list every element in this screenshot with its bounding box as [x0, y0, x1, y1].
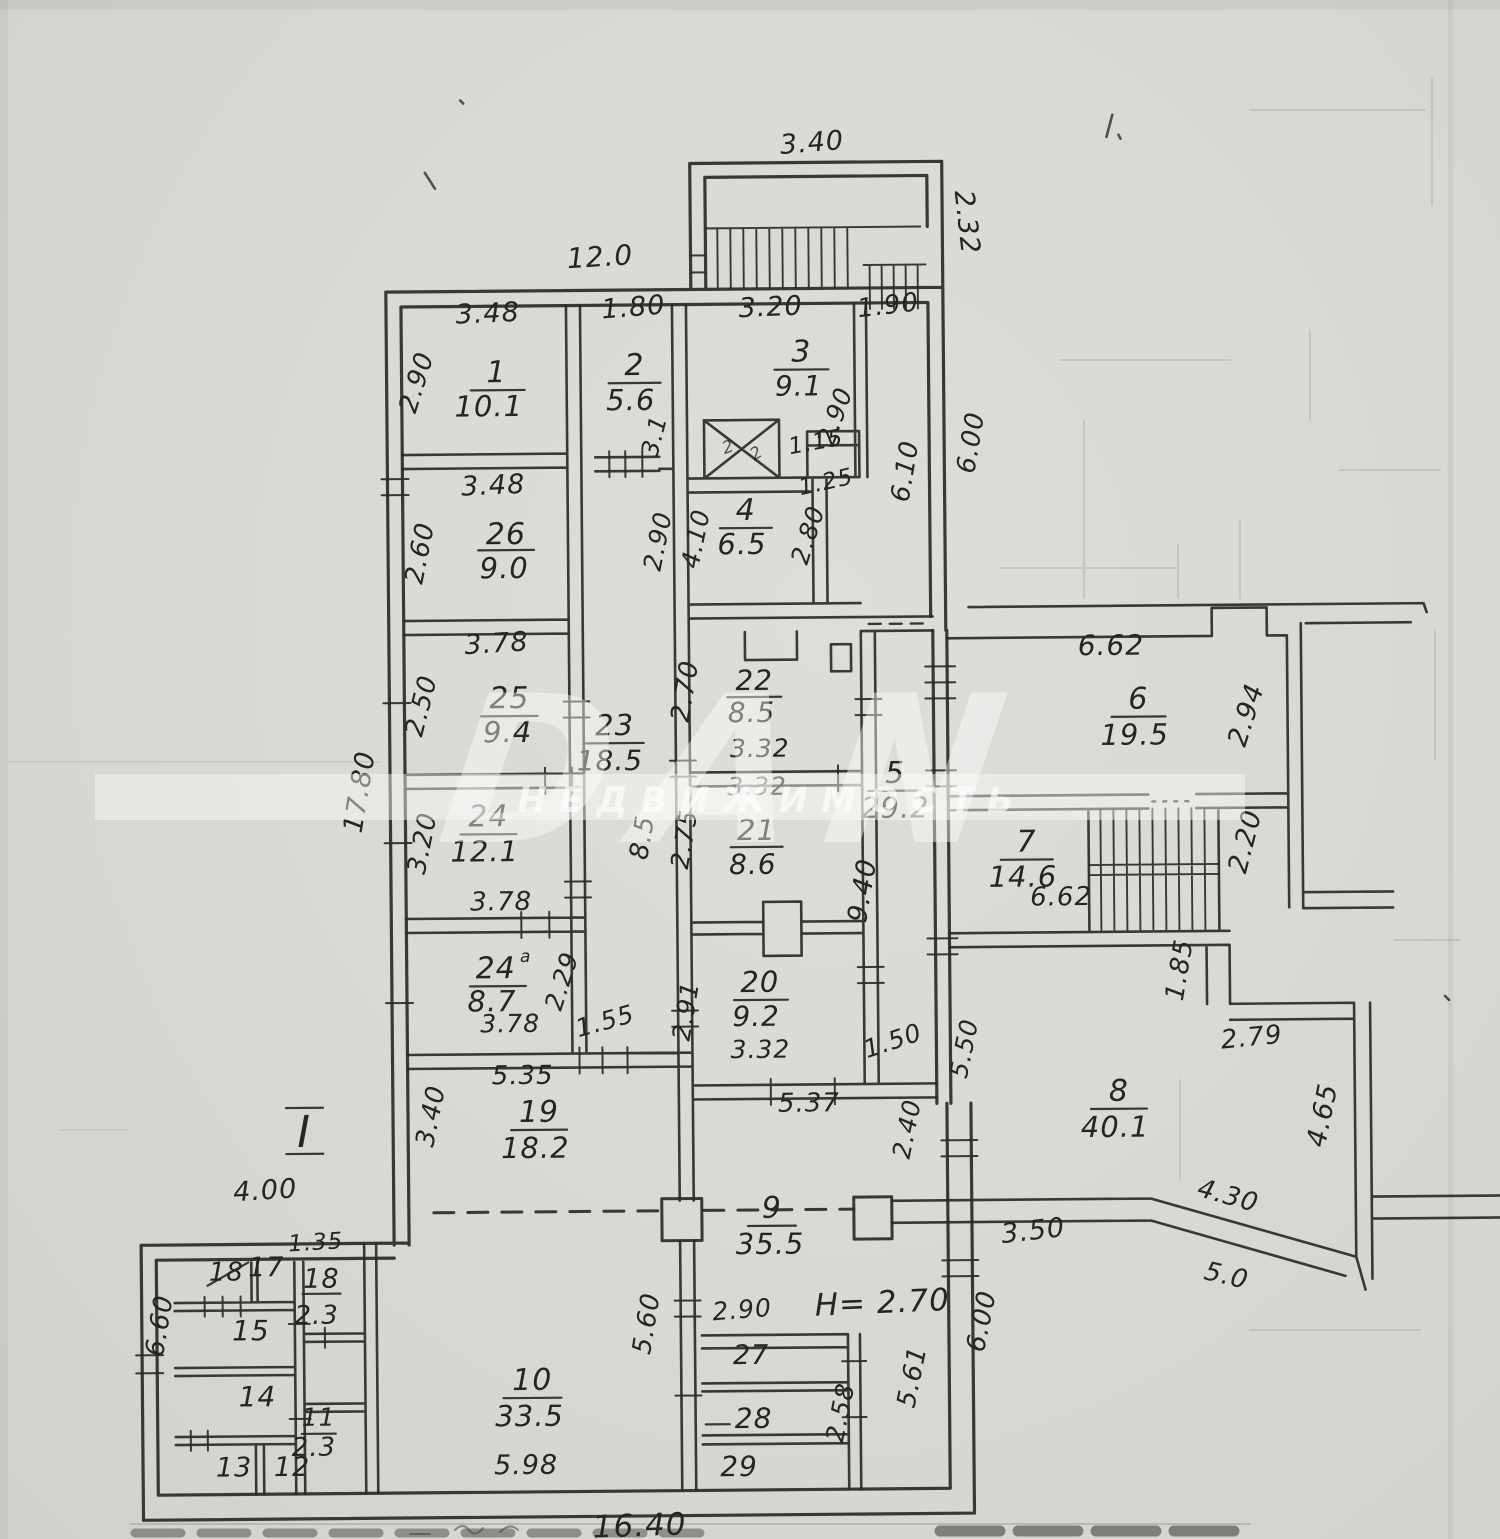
room-number: 6 [1128, 682, 1148, 717]
lift-scribble: 2 [747, 442, 767, 465]
room-number: 1 [486, 355, 506, 390]
dim-label: 3.78 [470, 887, 532, 918]
dim-label: 5.0 [1201, 1256, 1251, 1296]
dim-label: 4.10 [676, 507, 716, 571]
dim-label: 2.32 [948, 189, 986, 256]
dim-label: 3.48 [461, 469, 526, 503]
room-number: 4 [736, 493, 756, 528]
dim-label: 3.40 [410, 1083, 452, 1150]
dim-label: 2.80 [785, 502, 831, 568]
room-number: 18 [209, 1257, 244, 1287]
room-number: 3 [791, 334, 811, 369]
room-number: 10 [512, 1363, 552, 1398]
room-number-suffix: a [520, 947, 532, 967]
lift-scribble: 2 [719, 436, 737, 459]
dim-label: 6.00 [951, 410, 991, 476]
watermark: DAN НЕДВИЖИМОСТЬ [95, 652, 1245, 891]
dim-label: 2.90 [711, 1293, 773, 1327]
room-area: 33.5 [495, 1399, 564, 1434]
dim-label: 1.85 [1160, 937, 1200, 1003]
room-area: 6.5 [717, 527, 766, 561]
dim-label: 1.50 [860, 1017, 926, 1063]
room-area: 8.7 [467, 984, 516, 1018]
dashed-opening-line [434, 1209, 854, 1213]
dim-label: 4.65 [1301, 1081, 1344, 1150]
dim-label: 2.29 [539, 948, 585, 1014]
room-area: 40.1 [1081, 1110, 1150, 1145]
dim-label: 5.61 [892, 1344, 934, 1411]
dim-label: 3.48 [455, 297, 520, 331]
room-number: 18 [303, 1264, 340, 1295]
dim-label: 6.62 [1078, 629, 1145, 663]
dim-label: 2.94 [1222, 680, 1271, 750]
dim-label: 2.50 [399, 672, 444, 739]
column-junction-box [854, 1197, 892, 1239]
dim-label: 1.80 [600, 290, 666, 326]
column-junction-box [662, 1198, 702, 1240]
dashed-wall-segment [869, 623, 929, 624]
watermark-brand: DAN [428, 652, 1046, 891]
dim-label: 3.40 [779, 125, 845, 161]
dim-label: 3.32 [730, 1035, 790, 1065]
dim-label: 6.00 [961, 1288, 1003, 1355]
dim-label: 2.90 [638, 509, 678, 573]
dim-label: 1.35 [287, 1228, 344, 1257]
dim-label: 6.60 [140, 1293, 180, 1359]
dim-label: 6.10 [886, 438, 926, 504]
room-number: 20 [740, 965, 779, 999]
room-number: 17 [248, 1252, 285, 1283]
room-number: 8 [1109, 1074, 1129, 1109]
room-area: 5.6 [606, 383, 655, 417]
room-number: 27 [733, 1340, 770, 1371]
room-number: 2 [624, 348, 644, 383]
room-number: 11 [302, 1403, 336, 1432]
dim-label: 2.79 [1219, 1020, 1283, 1056]
room-area: 10.1 [454, 389, 523, 424]
dim-label: 1.25 [796, 464, 856, 501]
room-number: 13 [216, 1452, 253, 1483]
dim-label: 12.0 [566, 238, 634, 275]
room-number: 19 [519, 1095, 559, 1130]
room-area: 9.0 [480, 551, 529, 585]
section-mark: I [297, 1107, 311, 1158]
room-number: 14 [238, 1380, 276, 1413]
room-area: 19.5 [1100, 717, 1169, 752]
room-area: 18.2 [501, 1131, 570, 1166]
dim-label: 2.60 [399, 520, 441, 587]
room-number: 26 [486, 517, 526, 552]
dim-label: 5.98 [494, 1450, 558, 1482]
dim-label: 5.35 [492, 1061, 554, 1092]
room-number: 12 [274, 1452, 311, 1483]
room-number: 24 [475, 951, 515, 986]
room-number: 28 [735, 1402, 773, 1435]
watermark-subtitle: НЕДВИЖИМОСТЬ [517, 781, 1026, 821]
dim-label: 5.60 [627, 1291, 667, 1357]
dim-label: 3.1 [636, 412, 673, 459]
room-area: 2.3 [294, 1301, 339, 1331]
floor-plan-canvas: 3.40 2.32 12.0 1.90 3.48 1.80 3.20 2.90 … [0, 0, 1500, 1539]
scanned-floor-plan-page: 3.40 2.32 12.0 1.90 3.48 1.80 3.20 2.90 … [0, 0, 1500, 1539]
dim-label: 3.20 [738, 290, 803, 324]
dim-label: 1.55 [572, 999, 637, 1043]
dim-label: 2.91 [667, 979, 705, 1043]
room-area: 9.2 [732, 1000, 780, 1033]
dim-label: 5.37 [778, 1088, 840, 1119]
scan-bottom-edge: 16.40 [130, 1506, 1250, 1539]
room-number: 15 [232, 1314, 270, 1347]
dim-label: 2.40 [887, 1097, 927, 1161]
room-number: 9 [762, 1191, 782, 1226]
ceiling-height-note: H= 2.70 [814, 1282, 951, 1324]
room-number: 29 [720, 1450, 758, 1483]
dim-label: 1.90 [856, 287, 921, 324]
dim-label: 4.30 [1194, 1173, 1262, 1218]
room-area: 35.5 [736, 1227, 805, 1262]
room-area: 9.1 [775, 369, 823, 402]
dim-label: 3.50 [1000, 1212, 1067, 1250]
dim-label: 4.00 [232, 1173, 298, 1208]
